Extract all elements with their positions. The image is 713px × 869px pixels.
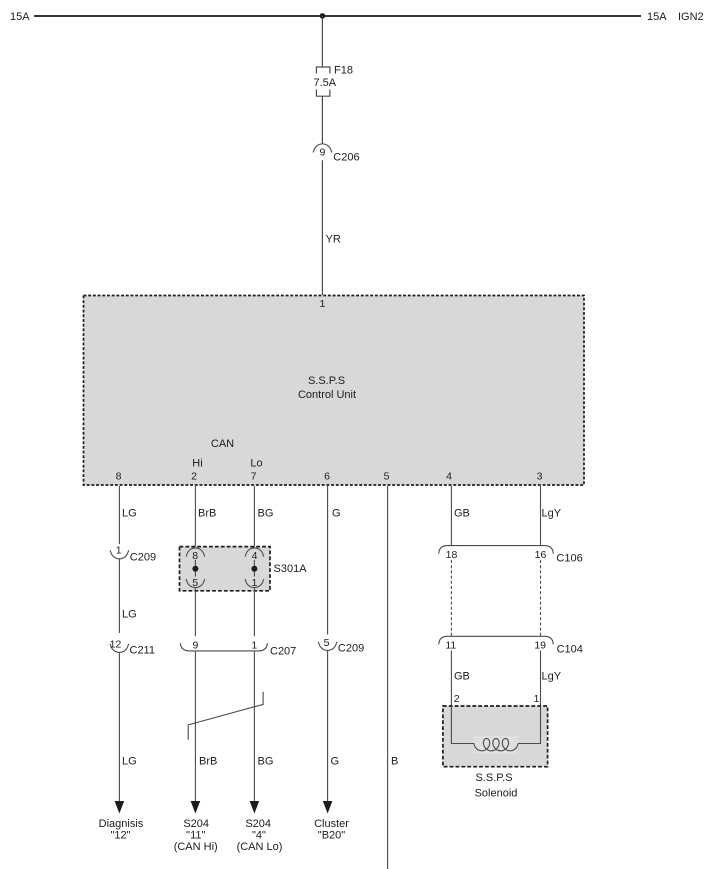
svg-text:LgY: LgY — [542, 671, 562, 683]
svg-text:BG: BG — [258, 756, 274, 768]
svg-text:1: 1 — [534, 693, 540, 705]
svg-text:CAN: CAN — [211, 438, 234, 450]
svg-text:IGN2: IGN2 — [678, 11, 704, 23]
svg-text:BrB: BrB — [198, 508, 216, 520]
svg-text:Lo: Lo — [250, 458, 262, 470]
svg-text:C106: C106 — [556, 553, 582, 565]
svg-text:7: 7 — [251, 471, 257, 483]
svg-text:1: 1 — [319, 298, 325, 310]
svg-text:18: 18 — [446, 549, 458, 561]
svg-text:4: 4 — [446, 471, 452, 483]
svg-text:2: 2 — [454, 693, 460, 705]
svg-text:LG: LG — [122, 508, 137, 520]
svg-text:"11": "11" — [186, 830, 205, 842]
svg-text:S204: S204 — [245, 818, 271, 830]
svg-text:1: 1 — [251, 639, 257, 651]
svg-text:Hi: Hi — [192, 458, 202, 470]
svg-text:C209: C209 — [338, 643, 364, 655]
svg-text:C209: C209 — [130, 551, 156, 563]
svg-text:7.5A: 7.5A — [314, 77, 337, 89]
svg-text:5: 5 — [384, 471, 390, 483]
svg-text:1: 1 — [251, 577, 257, 589]
svg-text:5: 5 — [192, 577, 198, 589]
svg-text:S204: S204 — [183, 818, 209, 830]
svg-text:G: G — [332, 508, 341, 520]
svg-text:S301A: S301A — [274, 563, 308, 575]
svg-text:G: G — [331, 756, 340, 768]
svg-text:C207: C207 — [270, 646, 296, 658]
svg-text:2: 2 — [191, 471, 197, 483]
svg-text:(CAN Hi): (CAN Hi) — [174, 841, 218, 853]
svg-text:6: 6 — [324, 471, 330, 483]
svg-text:9: 9 — [192, 639, 198, 651]
svg-text:LG: LG — [122, 756, 137, 768]
svg-text:9: 9 — [319, 146, 325, 158]
svg-text:Solenoid: Solenoid — [475, 788, 518, 800]
svg-text:16: 16 — [535, 549, 547, 561]
svg-text:BrB: BrB — [199, 756, 217, 768]
svg-text:11: 11 — [445, 640, 456, 652]
svg-text:5: 5 — [324, 637, 330, 649]
svg-text:1: 1 — [116, 545, 122, 557]
svg-text:Control Unit: Control Unit — [298, 389, 356, 401]
svg-text:12: 12 — [110, 638, 122, 650]
svg-text:S.S.P.S: S.S.P.S — [475, 772, 512, 784]
svg-text:Diagnisis: Diagnisis — [99, 818, 144, 830]
svg-text:LG: LG — [122, 609, 137, 621]
svg-text:YR: YR — [326, 234, 341, 246]
svg-text:F18: F18 — [334, 65, 353, 77]
svg-text:GB: GB — [454, 671, 470, 683]
svg-text:S.S.P.S: S.S.P.S — [308, 375, 345, 387]
svg-text:C104: C104 — [557, 644, 583, 656]
svg-text:LgY: LgY — [542, 508, 562, 520]
svg-text:Cluster: Cluster — [314, 818, 349, 830]
svg-text:"12": "12" — [110, 830, 130, 842]
svg-text:(CAN Lo): (CAN Lo) — [237, 841, 283, 853]
svg-text:19: 19 — [534, 640, 546, 652]
svg-text:C211: C211 — [130, 645, 155, 657]
svg-text:BG: BG — [258, 508, 274, 520]
svg-text:15A: 15A — [647, 11, 667, 23]
svg-text:"4": "4" — [252, 830, 266, 842]
svg-text:C206: C206 — [333, 152, 359, 164]
svg-text:GB: GB — [454, 508, 470, 520]
svg-text:B: B — [391, 756, 398, 768]
svg-text:15A: 15A — [10, 11, 30, 23]
svg-text:8: 8 — [116, 471, 122, 483]
svg-text:3: 3 — [537, 471, 543, 483]
svg-text:"B20": "B20" — [318, 830, 345, 842]
